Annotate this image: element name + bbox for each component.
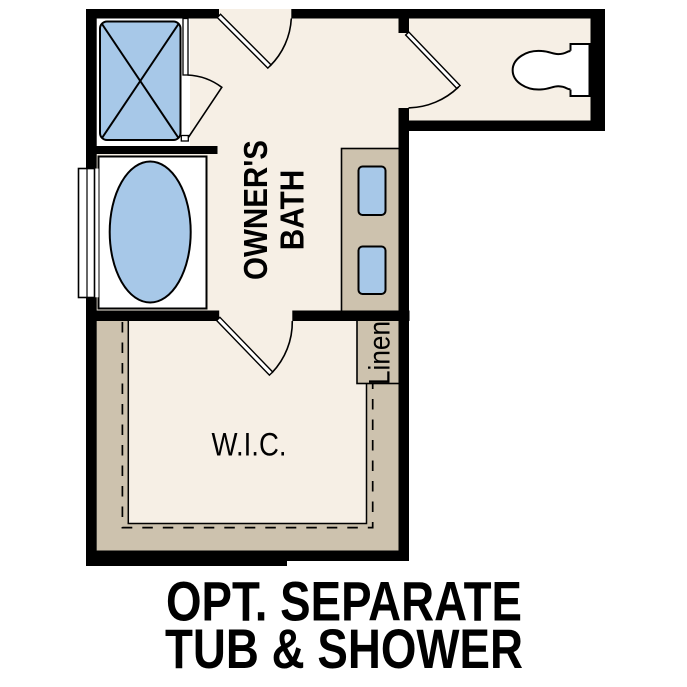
svg-text:W.I.C.: W.I.C. [212, 426, 287, 463]
svg-text:TUB & SHOWER: TUB & SHOWER [165, 617, 523, 680]
svg-text:Linen: Linen [363, 321, 396, 385]
svg-text:BATH: BATH [274, 170, 311, 251]
svg-text:OWNER'S: OWNER'S [238, 140, 275, 280]
